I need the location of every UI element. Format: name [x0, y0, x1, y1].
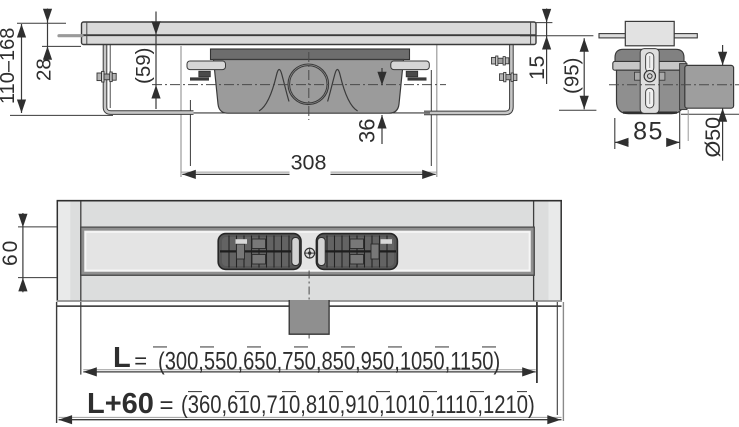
svg-text:(360,610,710,810,910,1010,1110: (360,610,710,810,910,1010,1110,1210)	[181, 390, 535, 419]
svg-text:60: 60	[0, 239, 22, 266]
svg-text:110–168: 110–168	[0, 28, 19, 104]
svg-text:L: L	[113, 342, 131, 374]
svg-text:=: =	[134, 348, 147, 373]
svg-text:36: 36	[355, 119, 380, 143]
svg-text:(59): (59)	[132, 48, 155, 84]
svg-text:(300,550,650,750,850,950,1050,: (300,550,650,750,850,950,1050,1150)	[158, 346, 500, 375]
svg-text:=: =	[160, 392, 174, 419]
svg-text:308: 308	[291, 150, 327, 174]
svg-text:(95): (95)	[561, 58, 584, 94]
svg-text:L+60: L+60	[87, 388, 154, 420]
svg-text:15: 15	[525, 55, 549, 80]
svg-text:Ø50: Ø50	[701, 117, 725, 158]
svg-text:28: 28	[33, 58, 56, 81]
svg-text:85: 85	[633, 117, 664, 145]
